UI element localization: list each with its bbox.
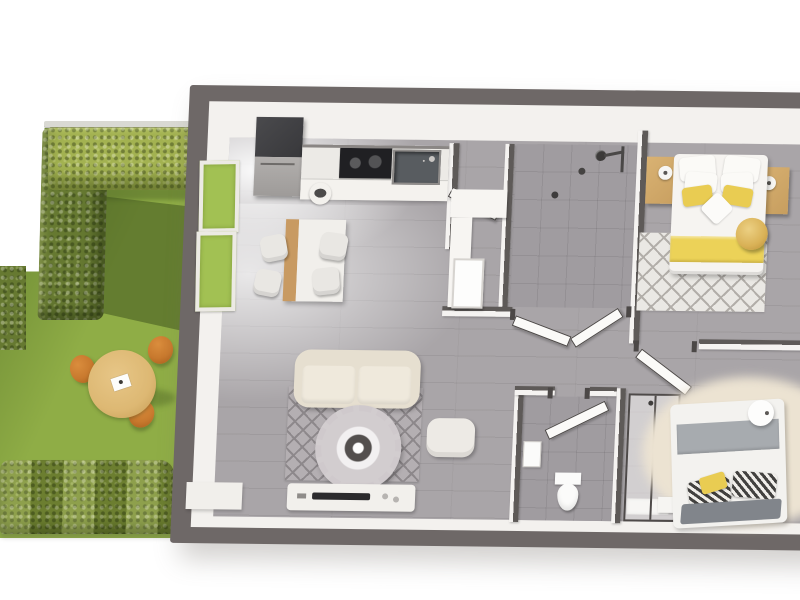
garden-window [195,231,236,312]
floor-plan-render [0,0,800,600]
dining-chair [318,231,349,262]
fridge-top [255,117,304,158]
door-frame [584,388,589,399]
bottom-hedge [0,460,174,534]
laundry-bench [450,189,507,218]
laundry-basin [451,258,484,308]
fence-rail [44,121,194,127]
wall-basin [522,441,541,467]
tv-console [286,483,415,512]
shower-room-tiles [509,144,637,308]
white-pouf [426,418,476,458]
door-frame [692,341,697,352]
left-hedge [0,266,26,350]
garden-table [88,350,156,418]
table-napkin [110,374,131,392]
sofa-cushion [357,366,412,405]
sofa-cushion [301,365,356,404]
master-bed [669,154,768,275]
fridge [253,117,303,197]
kitchen-sink [392,149,442,185]
speaker [393,497,399,503]
bedroom-wall [699,339,800,351]
speaker [382,493,388,499]
console-decor [297,493,306,498]
fridge-front [253,157,302,197]
house-exterior-wall [170,85,800,551]
top-hedge [48,126,192,190]
tv [312,493,370,501]
wc-wall [590,387,617,396]
cooktop [339,148,392,179]
sofa [293,349,422,409]
patterned-pillow [731,470,778,500]
dining-chair [311,266,340,296]
door-frame [626,306,631,317]
garden-window [199,160,240,233]
door-frame [634,340,639,351]
side-cabinet [185,482,242,510]
door-frame [547,387,552,398]
